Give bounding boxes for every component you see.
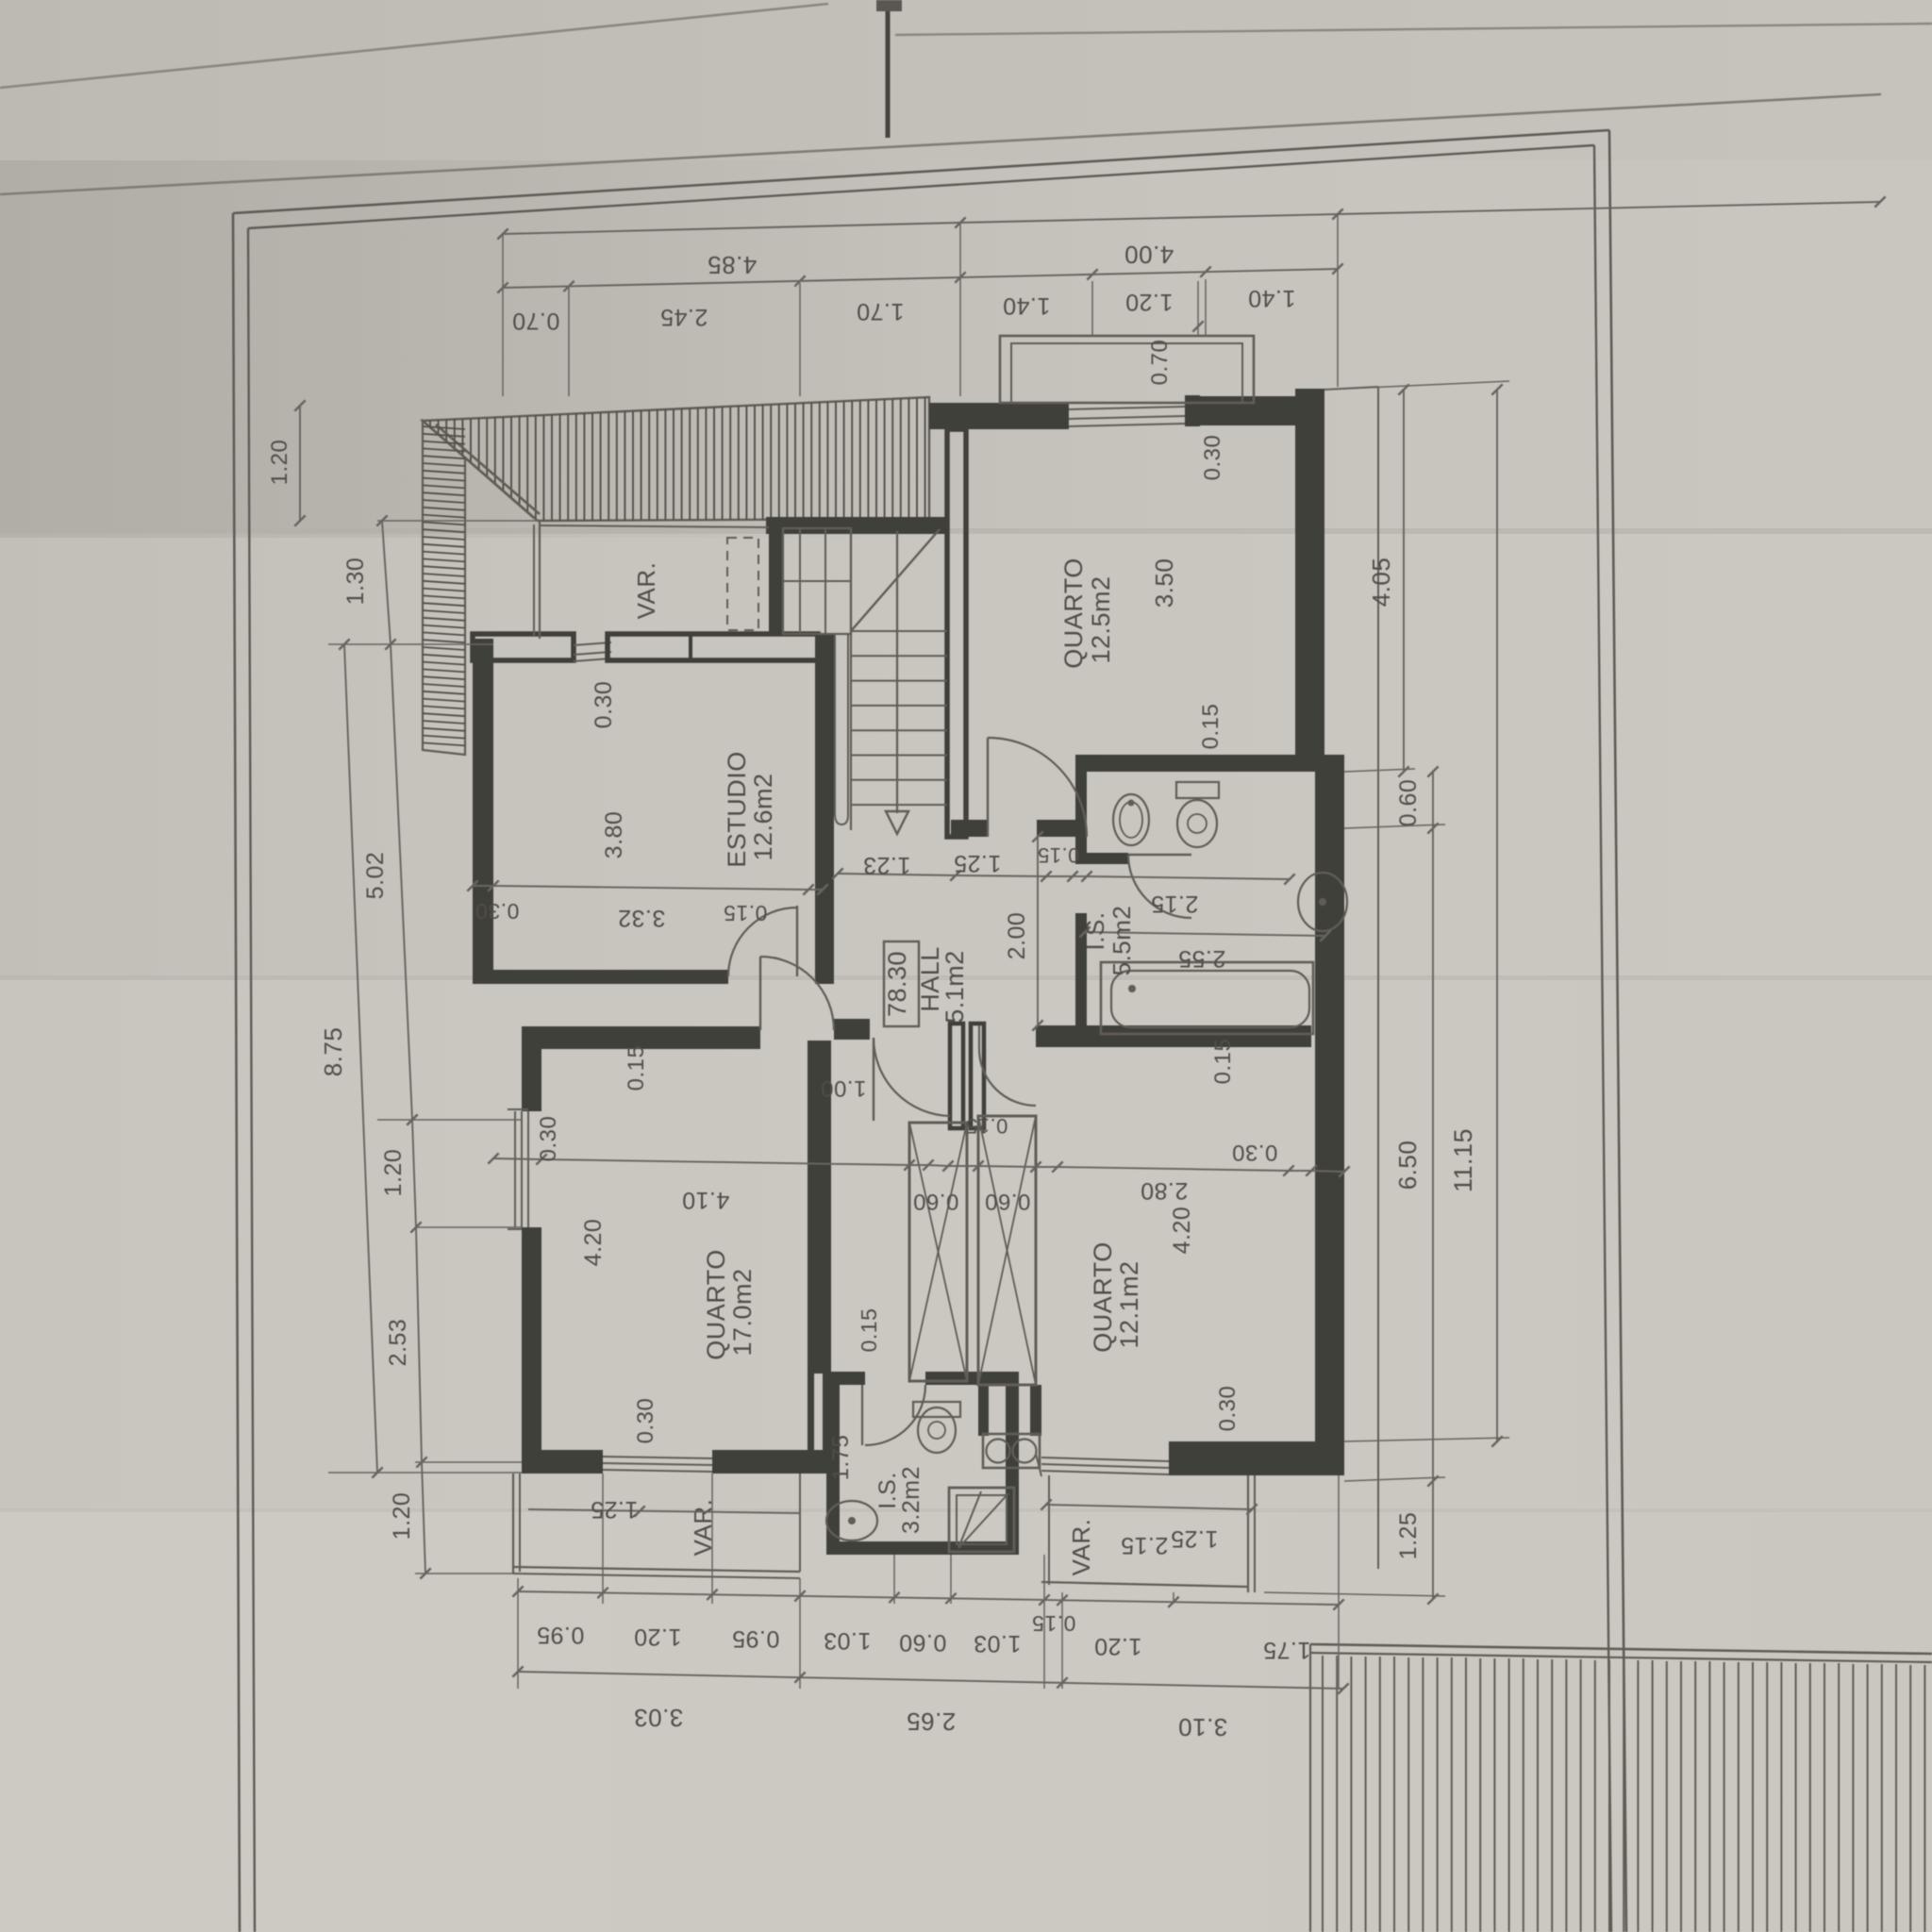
svg-text:1.00: 1.00 xyxy=(821,1075,867,1101)
svg-text:12.5m2: 12.5m2 xyxy=(1087,575,1115,663)
svg-text:2.53: 2.53 xyxy=(385,1319,411,1367)
svg-text:1.20: 1.20 xyxy=(389,1492,415,1541)
svg-text:I.S.: I.S. xyxy=(1081,911,1109,950)
svg-text:3.32: 3.32 xyxy=(618,905,666,931)
svg-text:2.80: 2.80 xyxy=(1141,1177,1189,1204)
svg-text:4.20: 4.20 xyxy=(1169,1207,1195,1255)
svg-text:1.75: 1.75 xyxy=(828,1435,854,1481)
svg-text:0.95: 0.95 xyxy=(732,1625,780,1652)
svg-text:QUARTO: QUARTO xyxy=(702,1249,730,1360)
svg-text:0.30: 0.30 xyxy=(1232,1140,1278,1165)
svg-text:3.50: 3.50 xyxy=(1150,558,1178,608)
svg-text:1.23: 1.23 xyxy=(863,852,911,878)
svg-text:4.10: 4.10 xyxy=(682,1187,730,1213)
svg-text:1.25: 1.25 xyxy=(1171,1525,1219,1552)
svg-text:2.15: 2.15 xyxy=(1151,891,1199,917)
svg-text:1.20: 1.20 xyxy=(1094,1633,1142,1659)
svg-text:0.15: 0.15 xyxy=(1032,1611,1076,1636)
svg-text:VAR.: VAR. xyxy=(632,562,660,620)
svg-text:12.6m2: 12.6m2 xyxy=(749,773,777,860)
svg-text:0.30: 0.30 xyxy=(475,899,520,924)
svg-text:0.70: 0.70 xyxy=(512,308,560,334)
svg-text:0.30: 0.30 xyxy=(633,1398,658,1444)
svg-text:2.15: 2.15 xyxy=(1121,1532,1169,1558)
svg-text:4.05: 4.05 xyxy=(1367,558,1395,608)
svg-text:0.60: 0.60 xyxy=(899,1629,947,1656)
svg-text:2.45: 2.45 xyxy=(660,304,708,330)
svg-text:3.03: 3.03 xyxy=(634,1704,684,1732)
svg-text:5.1m2: 5.1m2 xyxy=(941,950,969,1024)
svg-text:0.30: 0.30 xyxy=(1215,1386,1241,1432)
svg-text:6.50: 6.50 xyxy=(1393,1141,1422,1191)
svg-text:4.85: 4.85 xyxy=(708,251,758,279)
svg-text:I.S.: I.S. xyxy=(874,1472,901,1509)
svg-text:0.70: 0.70 xyxy=(1147,340,1173,386)
svg-text:11.15: 11.15 xyxy=(1449,1128,1477,1192)
svg-text:0.15: 0.15 xyxy=(1210,1039,1236,1085)
svg-text:8.75: 8.75 xyxy=(319,1027,347,1077)
svg-text:QUARTO: QUARTO xyxy=(1059,558,1088,669)
svg-text:12.1m2: 12.1m2 xyxy=(1115,1260,1143,1348)
svg-text:2.00: 2.00 xyxy=(1004,912,1030,960)
svg-text:0.15: 0.15 xyxy=(966,1114,1008,1138)
svg-text:4.00: 4.00 xyxy=(1124,241,1174,269)
svg-text:5.5m2: 5.5m2 xyxy=(1108,906,1136,976)
svg-text:1.25: 1.25 xyxy=(954,850,1002,876)
svg-text:QUARTO: QUARTO xyxy=(1089,1241,1117,1353)
svg-text:0.95: 0.95 xyxy=(537,1622,585,1648)
svg-text:1.25: 1.25 xyxy=(1395,1512,1422,1560)
svg-text:78.30: 78.30 xyxy=(883,951,911,1017)
svg-text:1.40: 1.40 xyxy=(1003,292,1051,319)
svg-text:1.25: 1.25 xyxy=(591,1496,639,1523)
svg-text:3.80: 3.80 xyxy=(601,811,627,859)
svg-text:1.40: 1.40 xyxy=(1248,285,1296,311)
svg-text:1.20: 1.20 xyxy=(380,1149,407,1197)
svg-text:1.20: 1.20 xyxy=(267,440,292,486)
svg-text:3.2m2: 3.2m2 xyxy=(898,1466,924,1534)
svg-text:0.15: 0.15 xyxy=(724,901,768,925)
svg-text:1.75: 1.75 xyxy=(1263,1637,1311,1663)
svg-text:5.02: 5.02 xyxy=(362,852,389,900)
svg-text:0.15: 0.15 xyxy=(857,1308,881,1353)
svg-text:0.60: 0.60 xyxy=(913,1189,959,1214)
svg-text:0.30: 0.30 xyxy=(1200,435,1225,481)
svg-text:0.15: 0.15 xyxy=(1198,704,1224,750)
svg-text:1.20: 1.20 xyxy=(1125,289,1174,315)
svg-text:17.0m2: 17.0m2 xyxy=(728,1268,757,1356)
svg-text:2.65: 2.65 xyxy=(907,1707,957,1736)
svg-text:1.30: 1.30 xyxy=(342,558,369,606)
svg-text:0.60: 0.60 xyxy=(1395,779,1422,827)
svg-text:3.10: 3.10 xyxy=(1178,1713,1228,1741)
svg-text:VAR.: VAR. xyxy=(1067,1519,1095,1576)
svg-text:0.15: 0.15 xyxy=(1038,843,1080,867)
svg-text:1.03: 1.03 xyxy=(824,1627,872,1654)
svg-text:ESTUDIO: ESTUDIO xyxy=(723,751,751,868)
svg-text:0.60: 0.60 xyxy=(985,1189,1031,1214)
svg-text:0.15: 0.15 xyxy=(624,1045,649,1091)
svg-text:0.30: 0.30 xyxy=(591,681,617,729)
svg-text:1.20: 1.20 xyxy=(634,1624,682,1650)
svg-text:2.55: 2.55 xyxy=(1178,945,1226,972)
svg-text:1.03: 1.03 xyxy=(974,1630,1022,1657)
svg-text:4.20: 4.20 xyxy=(580,1219,607,1267)
svg-text:0.30: 0.30 xyxy=(536,1116,561,1162)
svg-text:1.70: 1.70 xyxy=(857,298,905,325)
svg-text:VAR.: VAR. xyxy=(689,1499,717,1557)
